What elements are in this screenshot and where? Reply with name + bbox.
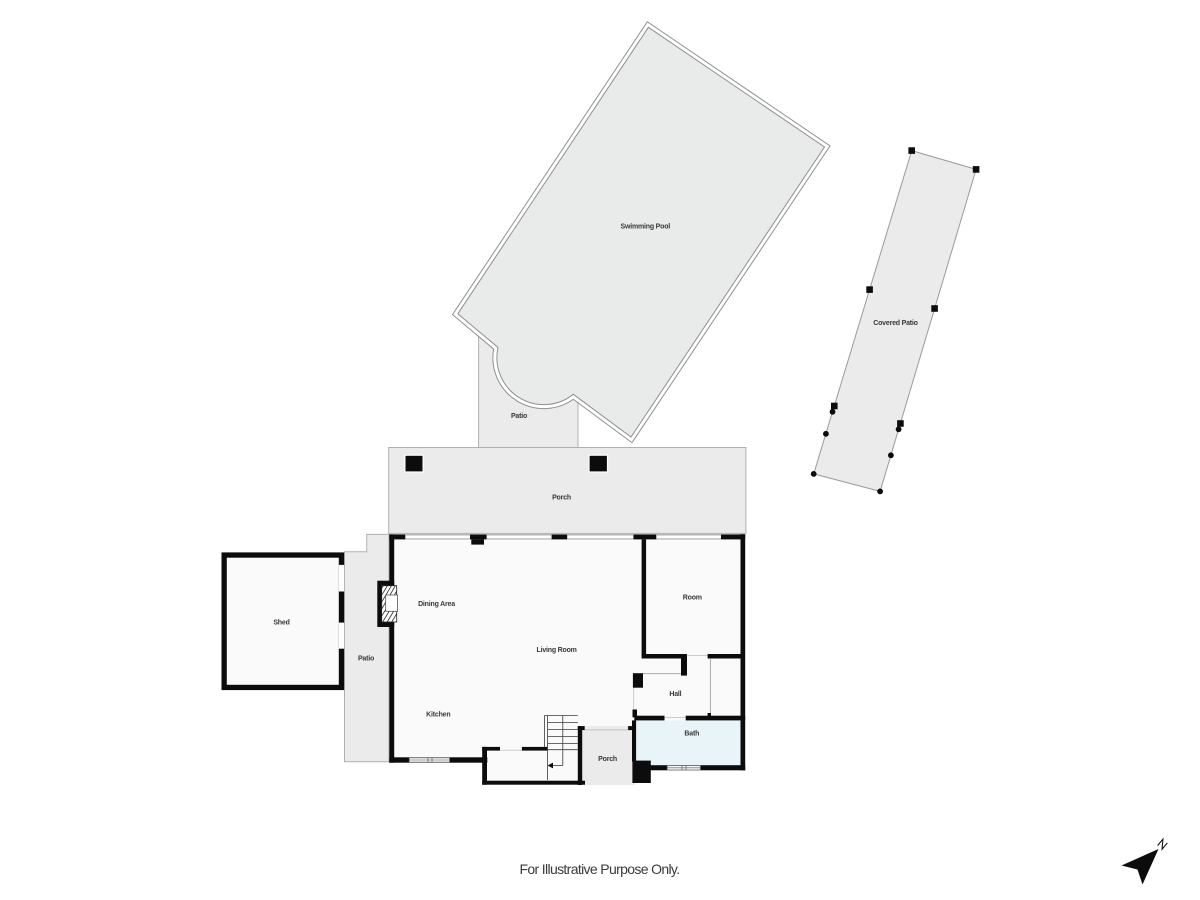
svg-text:Hall: Hall — [669, 691, 681, 698]
svg-text:Covered Patio: Covered Patio — [873, 320, 917, 327]
svg-text:Kitchen: Kitchen — [426, 711, 450, 718]
svg-text:Porch: Porch — [552, 495, 571, 502]
svg-text:Patio: Patio — [358, 656, 374, 663]
svg-text:Shed: Shed — [273, 620, 289, 627]
svg-text:Living Room: Living Room — [537, 647, 577, 654]
svg-text:Dining Area: Dining Area — [418, 601, 455, 608]
svg-text:For Illustrative Purpose Only.: For Illustrative Purpose Only. — [520, 861, 680, 877]
svg-text:Patio: Patio — [511, 413, 527, 420]
svg-text:Room: Room — [683, 595, 702, 602]
svg-text:Porch: Porch — [598, 756, 617, 763]
svg-text:Bath: Bath — [684, 731, 699, 738]
svg-text:Swimming Pool: Swimming Pool — [621, 223, 671, 230]
